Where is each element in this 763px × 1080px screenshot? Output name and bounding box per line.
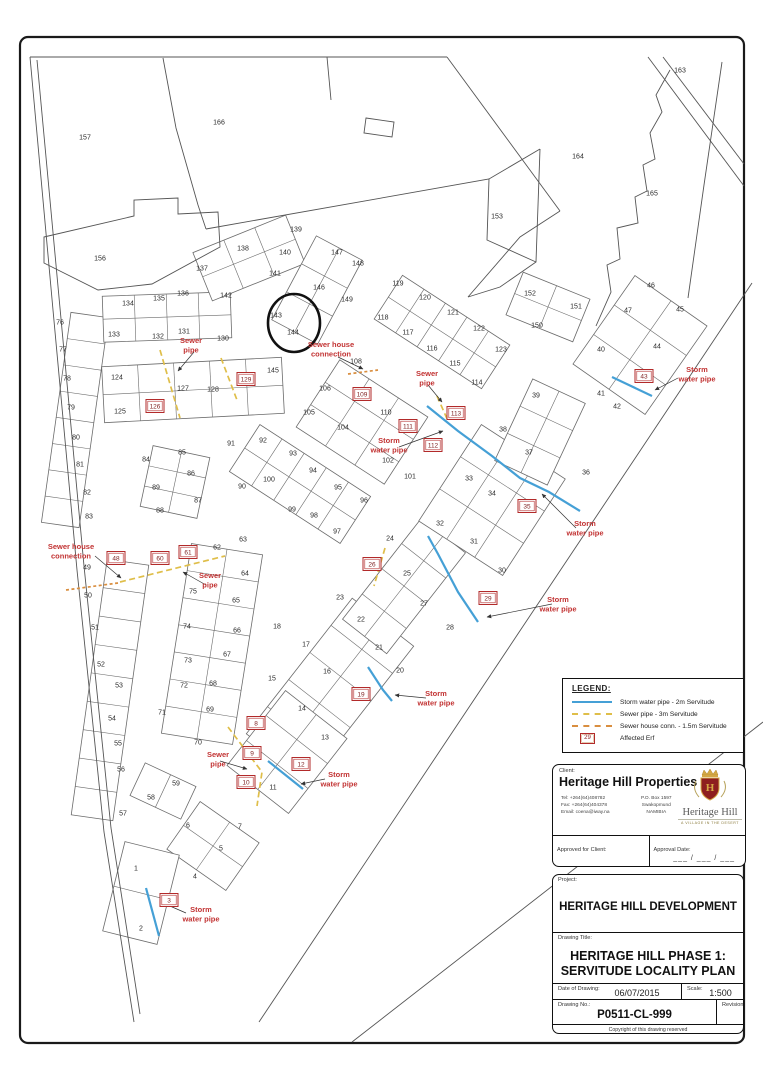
- svg-text:43: 43: [640, 374, 648, 381]
- erf-number: 133: [108, 332, 120, 339]
- erf-number: 152: [524, 291, 536, 298]
- affected-erf-box: 111: [399, 420, 417, 433]
- erf-number: 98: [310, 513, 318, 520]
- erf-number: 90: [238, 484, 246, 491]
- legend-item-house-conn: Sewer house conn. - 1.5m Servitude: [572, 720, 736, 732]
- erf-number: 115: [449, 361, 460, 368]
- erf-number: 145: [267, 368, 279, 375]
- erf-number: 124: [111, 375, 123, 382]
- erf-number: 18: [273, 624, 281, 631]
- erf-number: 106: [319, 386, 331, 393]
- affected-erf-box: 35: [518, 500, 536, 513]
- svg-text:109: 109: [357, 392, 368, 399]
- erf-number: 121: [447, 310, 459, 317]
- erf-number: 13: [321, 735, 329, 742]
- erf-number: 70: [194, 740, 202, 747]
- pipe-annotation: Stormwater pipe: [538, 595, 576, 614]
- erf-number: 34: [488, 491, 496, 498]
- sewer-pipe-symbol: [572, 713, 616, 715]
- pipe-annotation: Stormwater pipe: [677, 365, 715, 384]
- erf-number: 78: [63, 376, 71, 383]
- affected-erf-box: 29: [479, 592, 497, 605]
- svg-text:10: 10: [242, 780, 250, 787]
- affected-erf-box: 26: [363, 558, 381, 571]
- pipe-annotation: Sewerpipe: [180, 336, 202, 355]
- pipe-annotation: Stormwater pipe: [416, 689, 454, 708]
- erf-number: 83: [85, 514, 93, 521]
- erf-number: 45: [676, 307, 684, 314]
- erf-number: 147: [331, 250, 343, 257]
- erf-number: 151: [570, 304, 582, 311]
- erf-number: 65: [232, 598, 240, 605]
- erf-number: 51: [91, 625, 99, 632]
- affected-erf-box: 43: [635, 370, 653, 383]
- erf-number: 31: [470, 539, 478, 546]
- approved-for-client-label: Approved for Client:: [557, 847, 606, 853]
- drawing-title: HERITAGE HILL PHASE 1: SERVITUDE LOCALIT…: [553, 949, 743, 979]
- svg-text:26: 26: [368, 562, 376, 569]
- project-label: Project:: [558, 877, 577, 883]
- pipe-annotation: Stormwater pipe: [319, 770, 357, 789]
- approval-row: Approved for Client: Approval Date: ___ …: [553, 835, 745, 866]
- pipe-annotation: Sewer houseconnection: [48, 542, 94, 561]
- erf-number: 86: [187, 471, 195, 478]
- svg-text:29: 29: [484, 596, 492, 603]
- drawing-no-row: Drawing No.: P0511-CL-999 Revision:: [553, 999, 743, 1024]
- erf-number: 67: [223, 652, 231, 659]
- svg-text:35: 35: [523, 504, 531, 511]
- erf-number: 50: [84, 593, 92, 600]
- erf-number: 46: [647, 283, 655, 290]
- erf-number: 14: [298, 706, 306, 713]
- drawing-sheet: 1245671113141516171820212223242527283031…: [0, 0, 763, 1080]
- svg-text:12: 12: [297, 762, 305, 769]
- pipe-annotation: Sewerpipe: [416, 369, 438, 388]
- storm-pipe-symbol: [572, 701, 616, 703]
- affected-erf-box: 126: [146, 400, 164, 413]
- erf-number: 105: [303, 410, 315, 417]
- svg-text:H: H: [706, 782, 715, 794]
- erf-number: 117: [402, 330, 413, 337]
- drawing-title-block: Project: HERITAGE HILL DEVELOPMENT Drawi…: [552, 874, 744, 1034]
- date-scale-row: Date of Drawing: 06/07/2015 Scale: 1:500: [553, 983, 743, 999]
- erf-number: 148: [352, 261, 364, 268]
- affected-erf-box: 112: [424, 439, 442, 452]
- erf-number: 93: [289, 451, 297, 458]
- erf-number: 104: [337, 425, 349, 432]
- client-contact: Tel: +264(64)408782 Fax: +264(64)404378 …: [561, 795, 610, 816]
- erf-number: 33: [465, 476, 473, 483]
- erf-number: 108: [350, 359, 362, 366]
- project-name: HERITAGE HILL DEVELOPMENT: [553, 901, 743, 913]
- erf-number: 88: [156, 508, 164, 515]
- affected-erf-box: 61: [179, 546, 197, 559]
- erf-number: 97: [333, 529, 341, 536]
- erf-number: 42: [613, 404, 621, 411]
- erf-number: 123: [495, 347, 507, 354]
- house-conn-symbol: [572, 725, 616, 727]
- logo-tagline: A VILLAGE IN THE DESERT: [678, 819, 742, 825]
- erf-number: 40: [597, 347, 605, 354]
- drawing-title-label: Drawing Title:: [558, 935, 592, 941]
- erf-number: 66: [233, 628, 241, 635]
- erf-number: 39: [532, 393, 540, 400]
- drawing-no-value: P0511-CL-999: [553, 1009, 716, 1021]
- erf-number: 23: [336, 595, 344, 602]
- approval-date-label: Approval Date:: [654, 847, 691, 853]
- erf-number: 47: [624, 308, 632, 315]
- svg-text:9: 9: [250, 751, 254, 758]
- erf-number: 20: [396, 668, 404, 675]
- erf-number: 55: [114, 741, 122, 748]
- erf-number: 122: [473, 326, 485, 333]
- erf-number: 1: [134, 866, 138, 873]
- client-title-block: Client: Heritage Hill Properties Tel: +2…: [552, 764, 746, 867]
- erf-number: 63: [239, 537, 247, 544]
- erf-number: 73: [184, 658, 192, 665]
- erf-number: 53: [115, 683, 123, 690]
- erf-number: 36: [582, 470, 590, 477]
- erf-number: 2: [139, 926, 143, 933]
- pipe-annotation: Sewer houseconnection: [308, 340, 354, 359]
- client-label: Client:: [559, 768, 575, 774]
- erf-number: 127: [177, 386, 189, 393]
- legend-box: LEGEND: Storm water pipe - 2m Servitude …: [562, 678, 744, 753]
- erf-number: 94: [309, 468, 317, 475]
- erf-number: 59: [172, 781, 180, 788]
- erf-number: 37: [525, 450, 533, 457]
- erf-number: 27: [420, 601, 428, 608]
- erf-number: 16: [323, 669, 331, 676]
- erf-number: 4: [193, 874, 197, 881]
- erf-number: 84: [142, 457, 150, 464]
- svg-text:60: 60: [156, 556, 164, 563]
- erf-number: 62: [213, 545, 221, 552]
- erf-number: 144: [287, 330, 299, 337]
- erf-number: 100: [263, 477, 275, 484]
- scale-value: 1:500: [682, 988, 743, 998]
- erf-number: 140: [279, 250, 291, 257]
- erf-number: 166: [213, 120, 225, 127]
- legend-item-storm: Storm water pipe - 2m Servitude: [572, 696, 736, 708]
- copyright-row: Copyright of this drawing reserved: [553, 1024, 743, 1034]
- erf-number: 71: [158, 710, 166, 717]
- project-row: Project: HERITAGE HILL DEVELOPMENT: [553, 875, 743, 932]
- erf-number: 156: [94, 256, 106, 263]
- affected-erf-box: 48: [107, 552, 125, 565]
- erf-number: 5: [219, 846, 223, 853]
- erf-number: 128: [207, 387, 219, 394]
- erf-number: 7: [238, 824, 242, 831]
- copyright-note: Copyright of this drawing reserved: [553, 1027, 743, 1033]
- logo-crest-icon: H: [690, 767, 730, 801]
- erf-number: 146: [313, 285, 325, 292]
- erf-number: 134: [122, 301, 134, 308]
- date-of-drawing-value: 06/07/2015: [553, 988, 681, 998]
- svg-text:113: 113: [451, 411, 462, 418]
- erf-number: 54: [108, 716, 116, 723]
- erf-number: 96: [360, 498, 368, 505]
- erf-number: 11: [269, 785, 276, 792]
- svg-text:112: 112: [428, 443, 439, 450]
- erf-number: 74: [183, 624, 191, 631]
- erf-number: 139: [290, 227, 302, 234]
- affected-erf-box: 12: [292, 758, 310, 771]
- client-address: P.O. Box 1597 Swakopmund NAMIBIA: [641, 795, 672, 816]
- erf-number: 165: [646, 191, 658, 198]
- erf-number: 131: [178, 329, 190, 336]
- erf-number: 120: [419, 295, 431, 302]
- affected-erf-box: 3: [160, 894, 178, 907]
- erf-number: 30: [498, 568, 506, 575]
- erf-number: 28: [446, 625, 454, 632]
- erf-number: 137: [196, 266, 208, 273]
- erf-number: 72: [180, 683, 188, 690]
- erf-number: 101: [404, 474, 416, 481]
- erf-number: 85: [178, 450, 186, 457]
- erf-number: 132: [152, 334, 164, 341]
- affected-erf-symbol: 29: [572, 733, 616, 744]
- erf-number: 56: [117, 767, 125, 774]
- affected-erf-box: 109: [353, 388, 371, 401]
- affected-erf-box: 113: [447, 407, 465, 420]
- erf-number: 91: [227, 441, 235, 448]
- erf-number: 41: [597, 391, 605, 398]
- erf-number: 114: [471, 380, 482, 387]
- affected-erf-box: 10: [237, 776, 255, 789]
- legend-title: LEGEND:: [572, 684, 736, 693]
- erf-number: 87: [194, 498, 202, 505]
- erf-number: 95: [334, 485, 342, 492]
- svg-text:19: 19: [357, 692, 365, 699]
- heritage-hill-logo: H Heritage Hill A VILLAGE IN THE DESERT: [678, 767, 742, 833]
- client-name: Heritage Hill Properties: [559, 775, 697, 789]
- erf-number: 81: [76, 462, 84, 469]
- erf-number: 136: [177, 291, 189, 298]
- erf-number: 150: [531, 323, 543, 330]
- erf-number: 76: [56, 320, 64, 327]
- revision-label: Revision:: [722, 1002, 744, 1008]
- erf-number: 135: [153, 296, 165, 303]
- approval-date-value: ___ / ___ / ___: [673, 855, 735, 862]
- affected-erf-box: 19: [352, 688, 370, 701]
- erf-number: 79: [67, 405, 75, 412]
- erf-number: 15: [268, 676, 276, 683]
- legend-item-affected-erf: 29 Affected Erf: [572, 732, 736, 744]
- erf-number: 116: [426, 346, 437, 353]
- pipe-annotation: Sewerpipe: [207, 750, 229, 769]
- drawing-title-row: Drawing Title: HERITAGE HILL PHASE 1: SE…: [553, 932, 743, 983]
- pipe-annotation: Stormwater pipe: [181, 905, 219, 924]
- erf-number: 99: [288, 507, 296, 514]
- logo-wordmark: Heritage Hill: [678, 807, 742, 818]
- erf-number: 102: [382, 458, 394, 465]
- erf-number: 82: [83, 490, 91, 497]
- erf-number: 80: [72, 435, 80, 442]
- erf-number: 92: [259, 438, 267, 445]
- drawing-no-label: Drawing No.:: [558, 1002, 590, 1008]
- erf-number: 142: [220, 293, 232, 300]
- svg-text:8: 8: [254, 721, 258, 728]
- svg-text:61: 61: [184, 550, 192, 557]
- erf-number: 118: [377, 315, 388, 322]
- erf-number: 68: [209, 681, 217, 688]
- erf-number: 138: [237, 246, 249, 253]
- erf-number: 143: [270, 313, 282, 320]
- erf-number: 130: [217, 336, 229, 343]
- erf-number: 164: [572, 154, 584, 161]
- erf-number: 163: [674, 68, 686, 75]
- erf-number: 75: [189, 589, 197, 596]
- affected-erf-box: 8: [247, 717, 265, 730]
- erf-number: 6: [186, 823, 190, 830]
- erf-number: 157: [79, 135, 91, 142]
- erf-number: 24: [386, 536, 394, 543]
- erf-number: 58: [147, 795, 155, 802]
- erf-number: 25: [403, 571, 411, 578]
- erf-number: 153: [491, 214, 503, 221]
- erf-number: 125: [114, 409, 126, 416]
- erf-number: 57: [119, 811, 127, 818]
- erf-number: 17: [302, 642, 310, 649]
- erf-number: 141: [269, 271, 281, 278]
- erf-number: 64: [241, 571, 249, 578]
- erf-number: 32: [436, 521, 444, 528]
- svg-text:3: 3: [167, 898, 171, 905]
- erf-number: 22: [357, 617, 365, 624]
- svg-text:129: 129: [241, 377, 252, 384]
- erf-number: 89: [152, 485, 160, 492]
- svg-text:48: 48: [112, 556, 120, 563]
- legend-item-sewer: Sewer pipe - 3m Servitude: [572, 708, 736, 720]
- erf-number: 38: [499, 427, 507, 434]
- erf-number: 77: [59, 347, 67, 354]
- erf-number: 52: [97, 662, 105, 669]
- affected-erf-box: 129: [237, 373, 255, 386]
- pipe-annotation: Stormwater pipe: [565, 519, 603, 538]
- affected-erf-box: 60: [151, 552, 169, 565]
- erf-number: 21: [375, 645, 383, 652]
- erf-number: 110: [380, 410, 391, 417]
- erf-number: 49: [83, 565, 91, 572]
- erf-number: 69: [206, 707, 214, 714]
- svg-text:126: 126: [150, 404, 161, 411]
- erf-number: 149: [341, 297, 353, 304]
- affected-erf-box: 9: [243, 747, 261, 760]
- erf-number: 44: [653, 344, 661, 351]
- svg-text:111: 111: [403, 424, 413, 431]
- erf-number: 119: [392, 281, 403, 288]
